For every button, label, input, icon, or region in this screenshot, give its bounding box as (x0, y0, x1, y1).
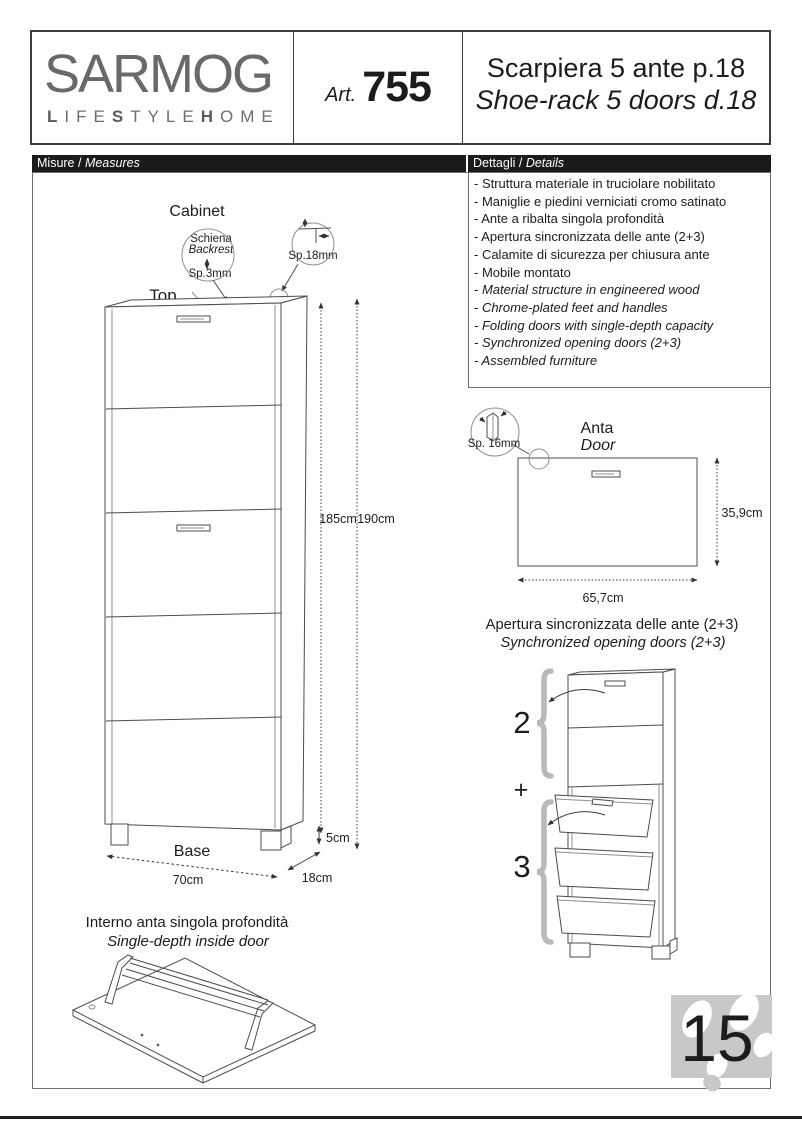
open-door-flap (555, 795, 653, 837)
cabinet-foot (670, 938, 677, 954)
feet-height-label: 5cm (326, 831, 350, 845)
door-title-it: Anta (581, 420, 614, 437)
product-title-cell: Scarpiera 5 ante p.18 Shoe-rack 5 doors … (463, 32, 769, 143)
details-label-en: Details (526, 156, 564, 170)
footer-rule (0, 1116, 802, 1119)
door-thickness-label: Sp. 16mm (468, 438, 520, 450)
details-item: - Material structure in engineered wood (474, 281, 766, 299)
header-box: SARMOG LIFESTYLEHOME Art. 755 Scarpiera … (30, 30, 771, 145)
details-item: - Calamite di sicurezza per chiusura ant… (474, 246, 766, 264)
details-item: - Folding doors with single-depth capaci… (474, 317, 766, 335)
measures-label-en: Measures (85, 156, 140, 170)
tagline-part: OME (220, 107, 280, 126)
details-item: - Struttura materiale in truciolare nobi… (474, 175, 766, 193)
open-door-flap (557, 896, 655, 937)
cabinet-foot (652, 946, 670, 959)
details-item: - Ante a ribalta singola profondità (474, 210, 766, 228)
brand-tagline: LIFESTYLEHOME (47, 107, 293, 127)
screw-hole (157, 1044, 160, 1047)
details-label-it: Dettagli / (473, 156, 526, 170)
section-bar-details: Dettagli / Details (468, 155, 771, 172)
tagline-part: TYLE (130, 107, 201, 126)
cabinet-height-label: 185cm (319, 512, 357, 526)
page-number: 15 (680, 1001, 753, 1075)
cabinet-technical-drawing: Cabinet Schiena Backrest Sp.3mm Sp.18mm … (32, 172, 468, 1089)
details-item: - Chrome-plated feet and handles (474, 299, 766, 317)
tagline-part: H (201, 107, 220, 126)
inside-door-caption-it: Interno anta singola profondità (86, 914, 289, 931)
tagline-part: S (112, 107, 130, 126)
door-handle (177, 316, 210, 322)
page-number-stamp: 15 (660, 990, 780, 1095)
tagline-part: IFE (64, 107, 111, 126)
group-brace-bottom (537, 802, 551, 942)
cabinet-title: Cabinet (169, 203, 225, 220)
measures-label-it: Misure / (37, 156, 85, 170)
details-item: - Apertura sincronizzata delle ante (2+3… (474, 228, 766, 246)
details-item: - Maniglie e piedini verniciati cromo sa… (474, 193, 766, 211)
group-brace-top (537, 671, 551, 776)
brand-name: SARMOG (44, 46, 293, 102)
article-number: 755 (362, 63, 431, 112)
section-bar-measures: Misure / Measures (32, 155, 466, 172)
brand-logo: SARMOG LIFESTYLEHOME (32, 32, 294, 143)
open-door-flap (555, 848, 653, 890)
details-item: - Assembled furniture (474, 352, 766, 370)
door-title-en: Door (581, 437, 616, 454)
inside-door-drawing (73, 955, 315, 1083)
tagline-part: L (47, 107, 64, 126)
details-panel: - Struttura materiale in truciolare nobi… (468, 172, 771, 388)
product-title-it: Scarpiera 5 ante p.18 (463, 52, 769, 84)
door-handle (177, 525, 210, 531)
article-cell: Art. 755 (294, 32, 463, 143)
product-title-en: Shoe-rack 5 doors d.18 (463, 84, 769, 116)
backrest-label-en: Backrest (189, 244, 235, 256)
cabinet-front-view (105, 296, 307, 850)
inside-door-caption-en: Single-depth inside door (107, 933, 270, 950)
base-dimensions: Base 70cm 18cm (107, 843, 332, 887)
door-height-label: 35,9cm (722, 506, 763, 520)
group-count-top: 2 (513, 705, 530, 740)
sync-diagram: 2 + 3 (513, 669, 677, 959)
backrest-thickness-label: Sp.3mm (189, 268, 232, 280)
screw-hole (141, 1034, 144, 1037)
details-list: - Struttura materiale in truciolare nobi… (474, 175, 766, 370)
door-handle (605, 681, 625, 686)
group-count-bottom: 3 (513, 849, 530, 884)
sync-caption-en: Synchronized opening doors (2+3) (501, 635, 726, 651)
sync-caption-it: Apertura sincronizzata delle ante (2+3) (486, 617, 739, 633)
details-item: - Synchronized opening doors (2+3) (474, 334, 766, 352)
door-width-label: 65,7cm (583, 591, 624, 605)
door-handle (592, 471, 620, 477)
article-prefix: Art. (325, 84, 356, 107)
base-label: Base (174, 843, 211, 860)
plus-sign: + (514, 776, 529, 804)
height-dimensions: 185cm 190cm 5cm (319, 299, 395, 849)
base-width-label: 70cm (173, 873, 204, 887)
door-technical-drawing: Anta Door Sp. 16mm 35,9cm 65,7cm Apertur… (468, 390, 771, 1088)
door-front-view (518, 458, 697, 566)
details-item: - Mobile montato (474, 264, 766, 282)
base-depth-label: 18cm (302, 871, 333, 885)
total-height-label: 190cm (357, 512, 395, 526)
cabinet-foot (570, 943, 590, 957)
